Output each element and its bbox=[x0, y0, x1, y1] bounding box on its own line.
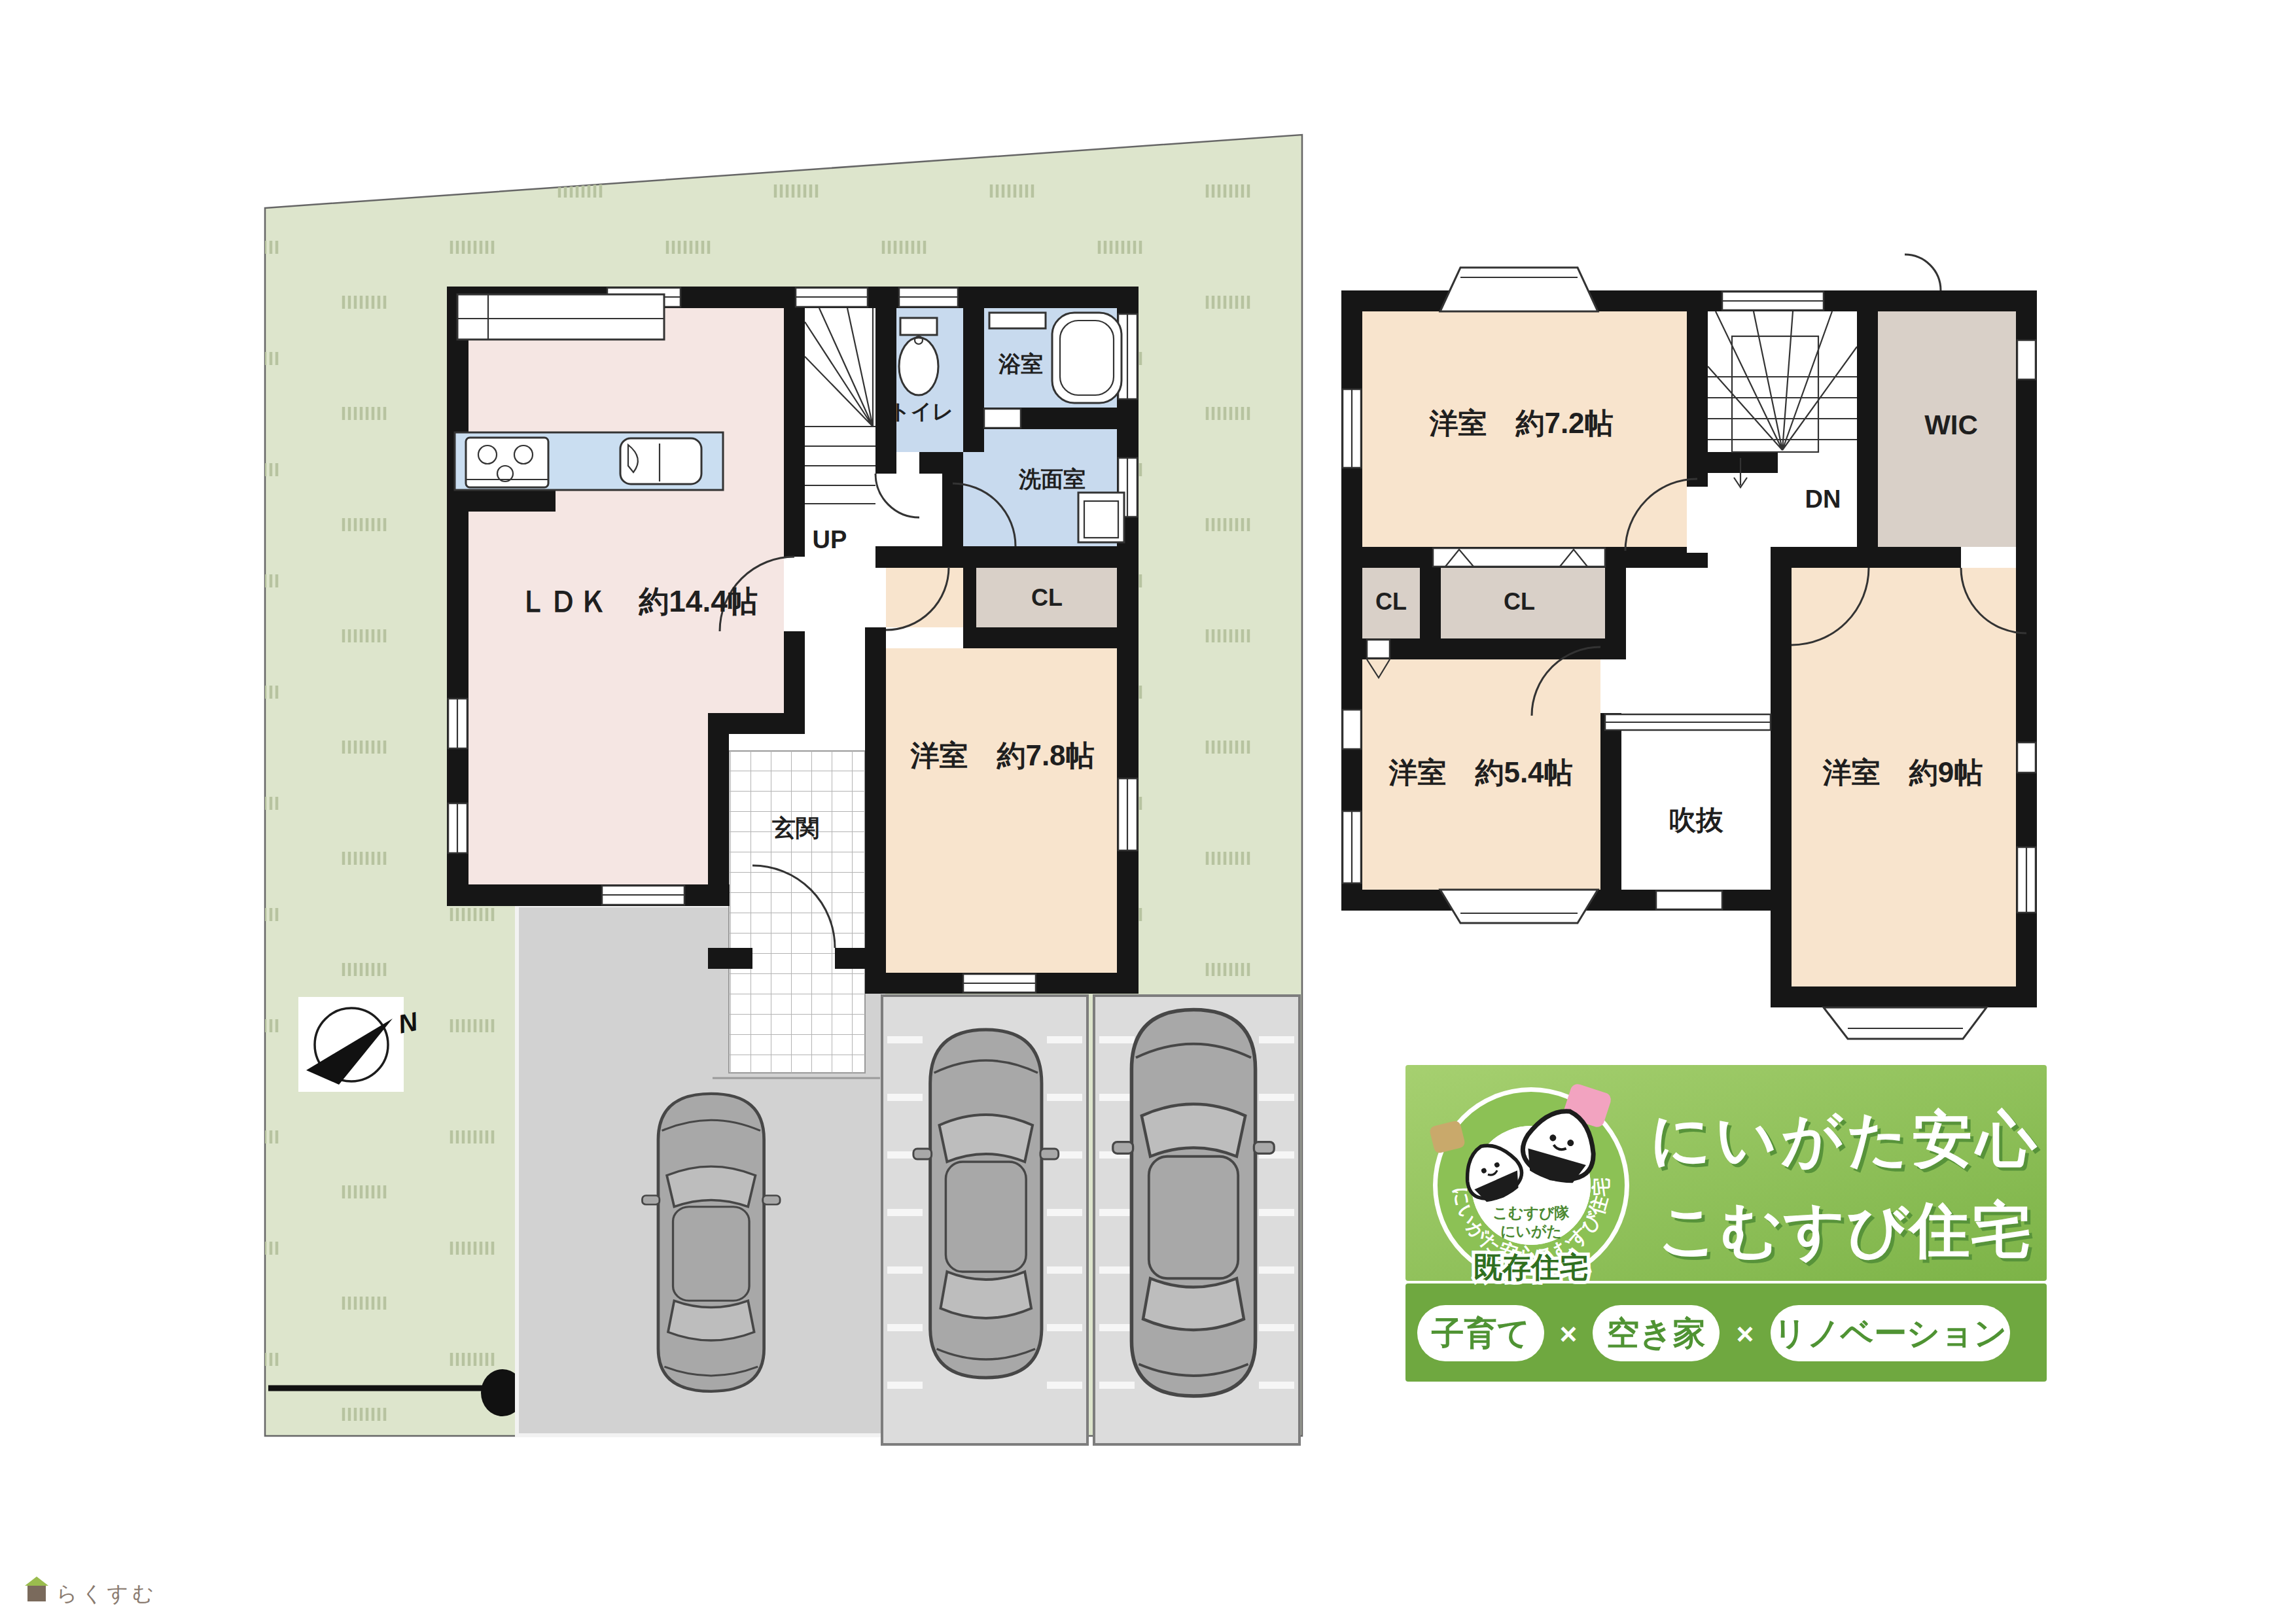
watermark-house-body-icon bbox=[27, 1586, 46, 1601]
compass: N bbox=[298, 997, 421, 1092]
label-closet2f-1: CL bbox=[1375, 588, 1407, 615]
logo-badge: 既存住宅 bbox=[1474, 1251, 1589, 1283]
label-up: UP bbox=[813, 526, 847, 553]
room-yoshitsu78 bbox=[886, 648, 1117, 973]
label-room54: 洋室 約5.4帖 bbox=[1388, 756, 1572, 788]
logo-subtext-1: こむすび隊 bbox=[1492, 1204, 1570, 1221]
pill-akiya-label: 空き家 bbox=[1606, 1315, 1705, 1352]
kitchen-cupboard bbox=[457, 294, 664, 340]
label-closet2f-2: CL bbox=[1504, 588, 1535, 615]
car-3 bbox=[1113, 1010, 1274, 1397]
label-room9: 洋室 約9帖 bbox=[1822, 756, 1983, 788]
label-room72: 洋室 約7.2帖 bbox=[1428, 407, 1613, 439]
label-closet-1f: CL bbox=[1031, 584, 1063, 611]
label-ldk: ＬＤＫ 約14.4帖 bbox=[518, 584, 758, 618]
label-room78: 洋室 約7.8帖 bbox=[910, 739, 1094, 771]
pill-separator-1: × bbox=[1560, 1317, 1578, 1351]
pill-separator-2: × bbox=[1737, 1317, 1754, 1351]
label-toilet: トイレ bbox=[889, 400, 953, 423]
stove-icon bbox=[466, 438, 548, 487]
floorplan-image: N bbox=[0, 0, 2296, 1623]
watermark-house-roof-icon bbox=[25, 1577, 48, 1586]
car-1 bbox=[643, 1094, 781, 1391]
car-2 bbox=[913, 1030, 1059, 1378]
floor2-plan: 洋室 約7.2帖 WIC DN CL CL 洋室 約5.4帖 吹抜 洋室 約9帖 bbox=[1341, 254, 2037, 1039]
label-void: 吹抜 bbox=[1669, 805, 1724, 835]
watermark: らくすむ bbox=[25, 1577, 158, 1605]
label-genkan: 玄関 bbox=[772, 814, 819, 841]
washing-machine-icon bbox=[1078, 493, 1124, 542]
watermark-label: らくすむ bbox=[56, 1582, 158, 1605]
pill-kosodate-label: 子育て bbox=[1431, 1315, 1530, 1352]
promo-banner: にいがた安心こむすび住宅 こむすび隊 にいがた bbox=[1405, 1065, 2047, 1382]
logo-subtext-2: にいがた bbox=[1500, 1223, 1562, 1240]
label-wic: WIC bbox=[1924, 410, 1978, 440]
room-nook bbox=[886, 568, 963, 627]
label-washroom: 洗面室 bbox=[1018, 466, 1086, 491]
sink-icon bbox=[620, 438, 701, 484]
banner-title2: こむすび住宅 bbox=[1658, 1196, 2033, 1263]
genkan-tile-grid bbox=[729, 751, 865, 1073]
banner-title1: にいがた安心 bbox=[1650, 1106, 2041, 1172]
toilet-icon bbox=[899, 318, 938, 395]
label-dn: DN bbox=[1805, 485, 1841, 513]
label-bath: 浴室 bbox=[998, 351, 1043, 376]
pill-renovation-label: リノベーション bbox=[1773, 1315, 2007, 1352]
